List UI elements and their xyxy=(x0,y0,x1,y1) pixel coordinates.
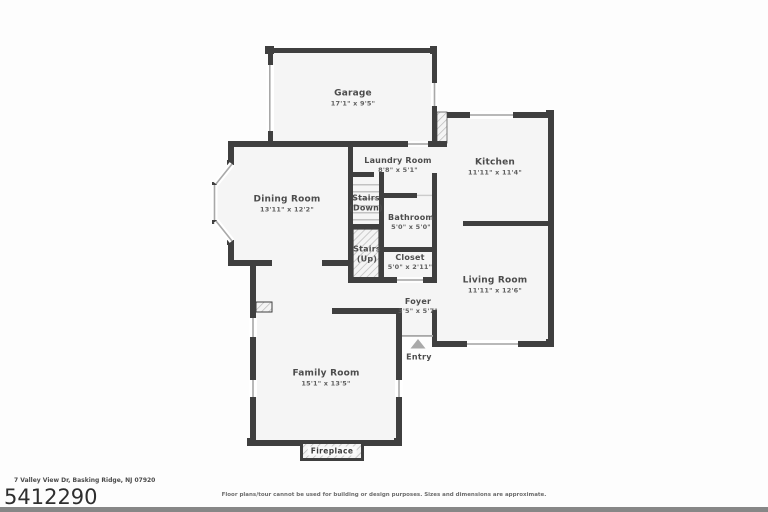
fireplace-label: Fireplace xyxy=(308,447,357,456)
floor-plan-page: Garage 17'1" x 9'5" Laundry Room 8'8" x … xyxy=(0,0,768,512)
stairs-up-hatch xyxy=(353,229,379,278)
listing-number: 5412290 xyxy=(4,486,98,508)
disclaimer-text: Floor plans/tour cannot be used for buil… xyxy=(222,492,547,498)
entry-arrow-icon xyxy=(411,339,426,349)
floor-plan-drawing xyxy=(0,0,768,512)
family-wall-hatch xyxy=(256,302,272,312)
bottom-edge-band xyxy=(0,507,768,512)
garage-kitchen-hatch xyxy=(437,112,447,143)
property-address: 7 Valley View Dr, Basking Ridge, NJ 0792… xyxy=(14,477,155,484)
entry-label: Entry xyxy=(406,353,432,362)
